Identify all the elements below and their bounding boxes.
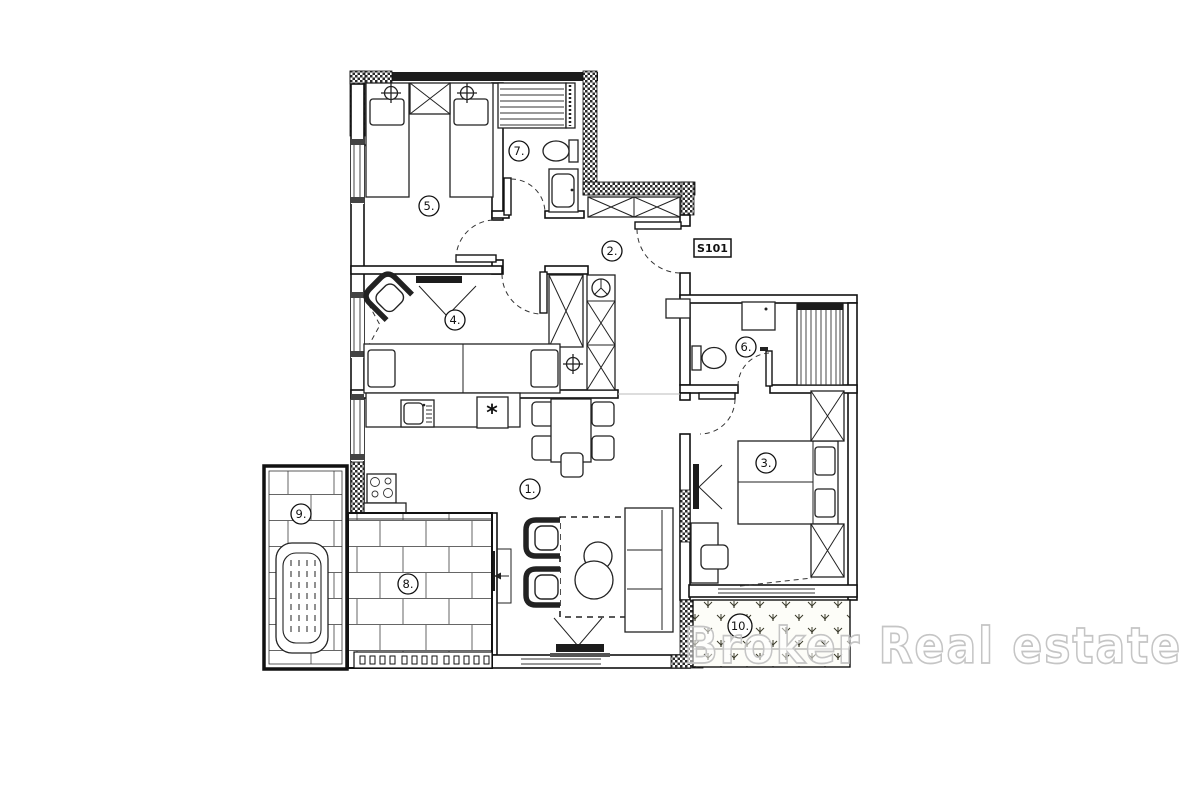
storage-shelves — [498, 83, 575, 128]
toilet — [692, 346, 726, 370]
room-label-7: 7. — [509, 141, 529, 161]
svg-text:7.: 7. — [514, 144, 525, 158]
window-kitchen — [351, 394, 364, 461]
sink — [742, 302, 775, 330]
toilet — [543, 140, 578, 162]
single-bed — [366, 83, 409, 197]
double-bed — [738, 441, 838, 524]
entrance-door — [635, 222, 681, 273]
room-label-1: 1. — [520, 479, 540, 499]
desk — [691, 523, 728, 583]
room-label-4: 4. — [445, 310, 465, 330]
svg-text:8.: 8. — [403, 577, 414, 591]
room-label-9: 9. — [291, 504, 311, 524]
sofa — [625, 508, 673, 632]
room-8-terrace — [348, 513, 492, 668]
dining-table — [532, 399, 614, 477]
floor-plan-page: S101 — [0, 0, 1200, 800]
room-label-8: 8. — [398, 574, 418, 594]
railing — [354, 652, 492, 668]
wardrobe — [811, 391, 844, 441]
bathtub — [276, 543, 328, 653]
room-label-3: 3. — [756, 453, 776, 473]
svg-text:2.: 2. — [607, 244, 618, 258]
closet-column — [549, 275, 583, 347]
armchair — [526, 569, 560, 605]
room-label-2: 2. — [602, 241, 622, 261]
armchair — [526, 520, 560, 556]
double-bed — [364, 344, 560, 393]
room-label-6: 6. — [736, 337, 756, 357]
dishwasher: * — [477, 397, 508, 428]
sink — [549, 169, 578, 212]
svg-text:5.: 5. — [424, 199, 435, 213]
floor-plan-canvas: S101 — [0, 0, 1200, 800]
room-9-terrace — [264, 466, 347, 669]
utility-column — [587, 275, 615, 390]
door-room7 — [504, 178, 545, 215]
stove — [364, 474, 406, 513]
room-6-bathroom — [692, 302, 843, 386]
svg-text:4.: 4. — [450, 313, 461, 327]
watermark: Broker Real estate — [684, 617, 1182, 675]
window-living-south — [521, 657, 601, 666]
niche — [666, 299, 690, 318]
door-room5 — [456, 220, 496, 262]
wardrobe — [588, 197, 680, 217]
svg-text:3.: 3. — [761, 456, 772, 470]
room-3-bedroom — [691, 391, 844, 583]
tv — [550, 618, 610, 657]
unit-label: S101 — [694, 239, 731, 257]
svg-text:1.: 1. — [525, 482, 536, 496]
ceiling-light-icon — [563, 354, 583, 374]
shower — [797, 303, 843, 385]
room-5-bedroom — [366, 83, 496, 262]
desk — [416, 276, 476, 316]
svg-text:*: * — [486, 401, 498, 426]
armchair — [363, 271, 412, 320]
wardrobe — [811, 524, 844, 577]
coffee-tables — [575, 542, 613, 599]
svg-text:6.: 6. — [741, 340, 752, 354]
wardrobe — [410, 83, 450, 114]
tv — [693, 464, 722, 509]
door-room4 — [502, 272, 547, 314]
single-bed — [450, 83, 493, 197]
room-label-5: 5. — [419, 196, 439, 216]
svg-text:S101: S101 — [697, 242, 728, 255]
svg-text:9.: 9. — [296, 507, 307, 521]
door-room3 — [699, 393, 735, 434]
